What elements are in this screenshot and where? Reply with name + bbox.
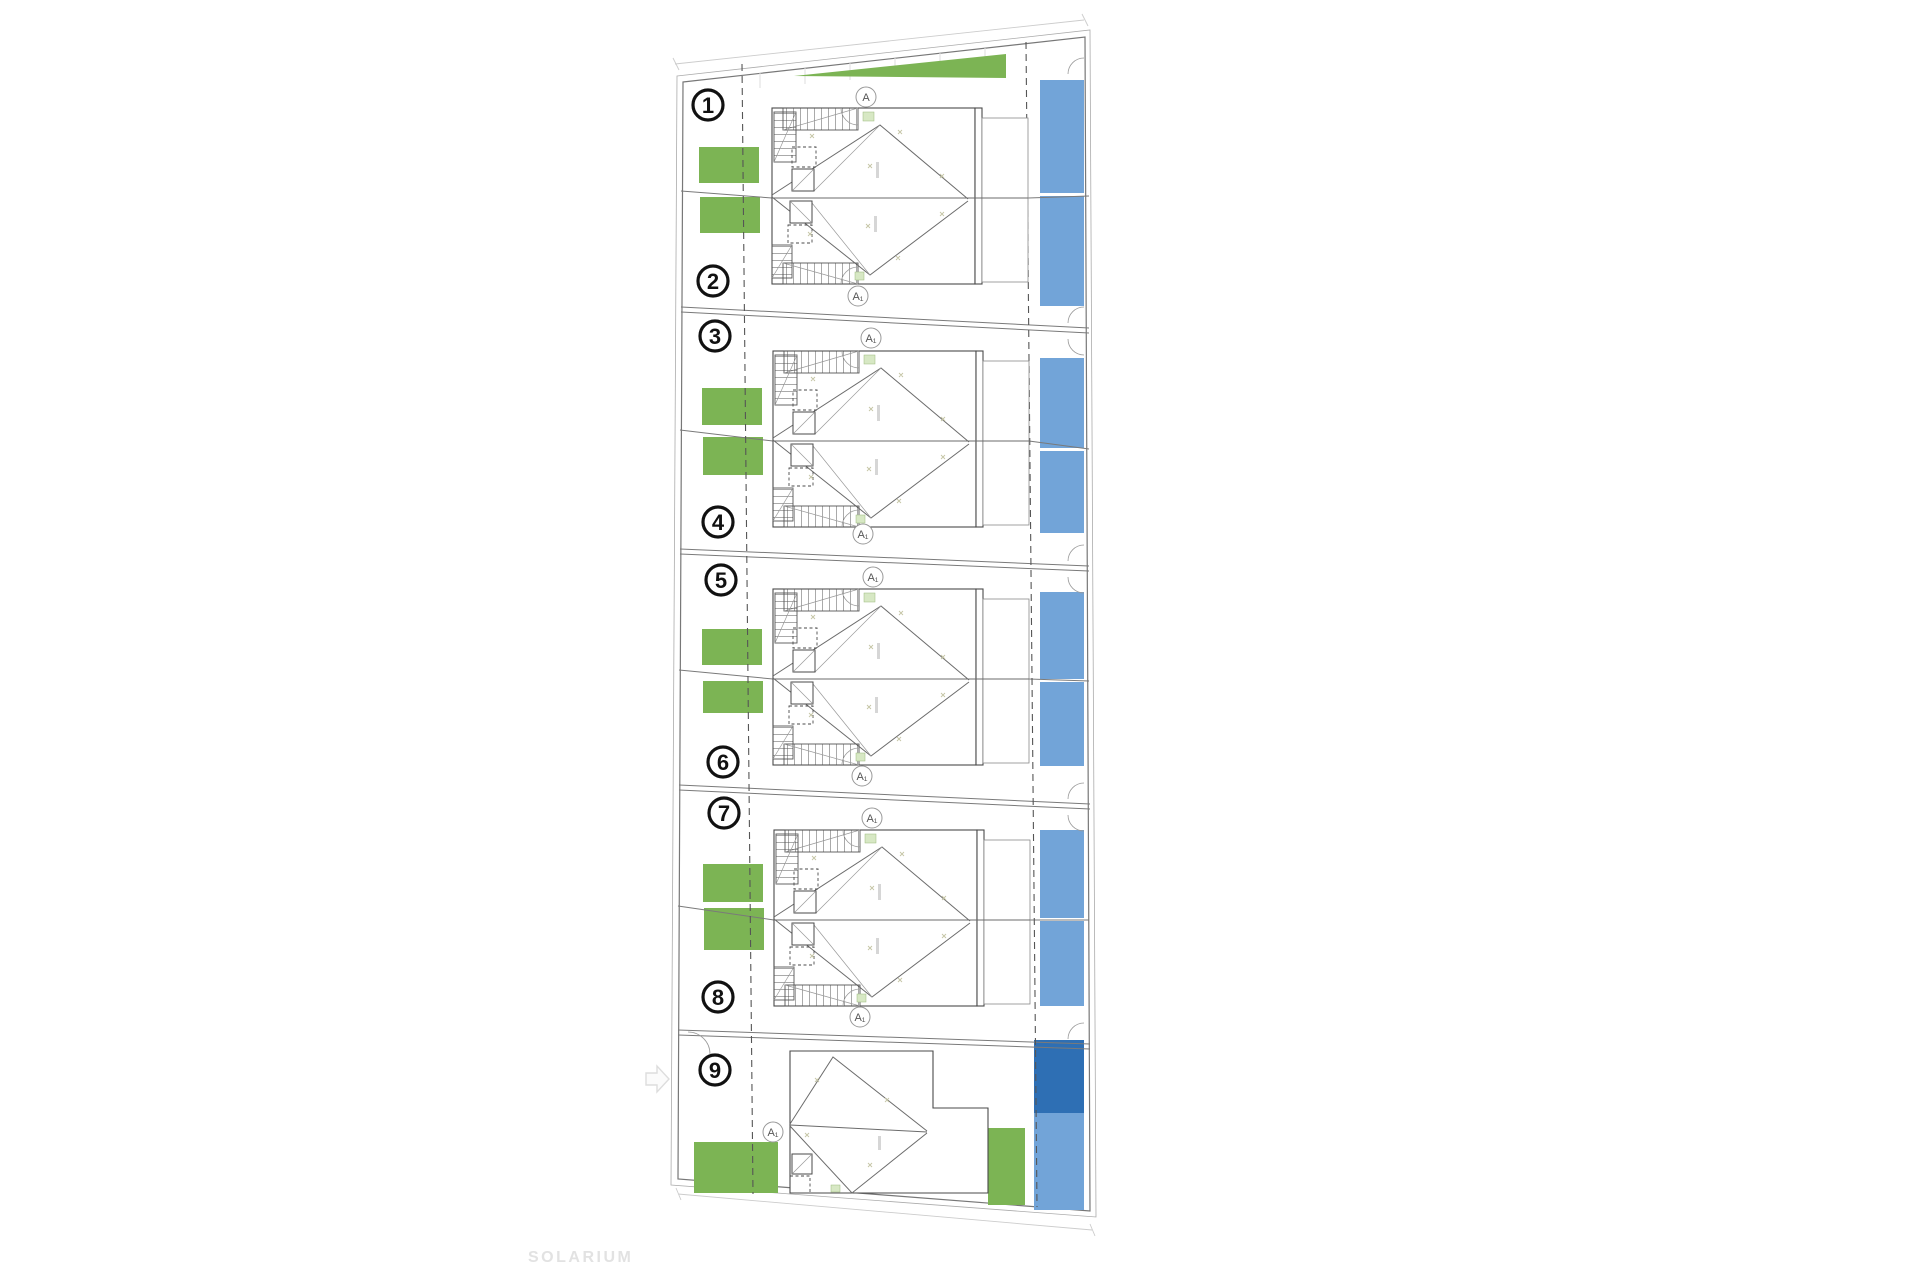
pool-unit-3 <box>1040 358 1084 448</box>
unit-6-label: 6 <box>717 750 729 775</box>
garden-rect-unit-4 <box>703 437 763 475</box>
north-arrow-icon <box>646 1066 669 1092</box>
pool-unit-9-deep <box>1034 1040 1084 1113</box>
pool-unit-1 <box>1040 80 1084 193</box>
duplex-plan-units-7-8 <box>774 830 1030 1006</box>
solarium-label: SOLARIUM <box>528 1249 633 1266</box>
unit-8-label: 8 <box>712 985 724 1010</box>
unit-5-label: 5 <box>715 568 727 593</box>
pool-unit-2 <box>1040 196 1084 306</box>
garden-rect-unit-1 <box>699 147 759 183</box>
garden-rect-unit-6 <box>703 681 763 713</box>
section-marker-label: A₁ <box>852 291 863 303</box>
section-marker-label: A₁ <box>866 813 877 825</box>
pools <box>1034 80 1084 1210</box>
section-marker-label: A₁ <box>857 529 868 541</box>
pool-unit-8 <box>1040 921 1084 1006</box>
site-plan-drawing: A A₁ A₁ A₁ A₁ A₁ A₁ A₁ A₁ 1 2 3 4 5 6 7 … <box>0 0 1920 1280</box>
duplex-plan-units-3-4 <box>773 351 1029 527</box>
unit-4-label: 4 <box>712 510 725 535</box>
garden-rect-unit-7 <box>703 864 763 902</box>
pool-unit-7 <box>1040 830 1084 918</box>
garden-rect-unit-5 <box>702 629 762 665</box>
unit-9-label: 9 <box>709 1058 721 1083</box>
unit-3-label: 3 <box>709 324 721 349</box>
section-marker-label: A₁ <box>865 333 876 345</box>
section-marker-label: A₁ <box>856 771 867 783</box>
pool-unit-4 <box>1040 451 1084 533</box>
section-marker-label: A₁ <box>867 572 878 584</box>
garden-rect-unit-9-left <box>694 1142 778 1193</box>
pool-unit-6 <box>1040 682 1084 766</box>
unit-2-label: 2 <box>707 269 719 294</box>
garden-rect-unit-9-right <box>988 1128 1025 1205</box>
pool-unit-9-shallow <box>1034 1113 1084 1210</box>
duplex-plan-units-1-2 <box>772 108 1028 284</box>
garden-rect-unit-2 <box>700 197 760 233</box>
duplex-plan-units-5-6 <box>773 589 1029 765</box>
unit-7-label: 7 <box>718 801 730 826</box>
garden-rect-unit-3 <box>702 388 762 425</box>
unit-1-label: 1 <box>702 93 714 118</box>
section-marker-label: A₁ <box>767 1127 778 1139</box>
section-marker-label: A <box>862 92 870 104</box>
site-plan-page: A A₁ A₁ A₁ A₁ A₁ A₁ A₁ A₁ 1 2 3 4 5 6 7 … <box>0 0 1920 1280</box>
section-marker-label: A₁ <box>854 1012 865 1024</box>
pool-unit-5 <box>1040 592 1084 679</box>
